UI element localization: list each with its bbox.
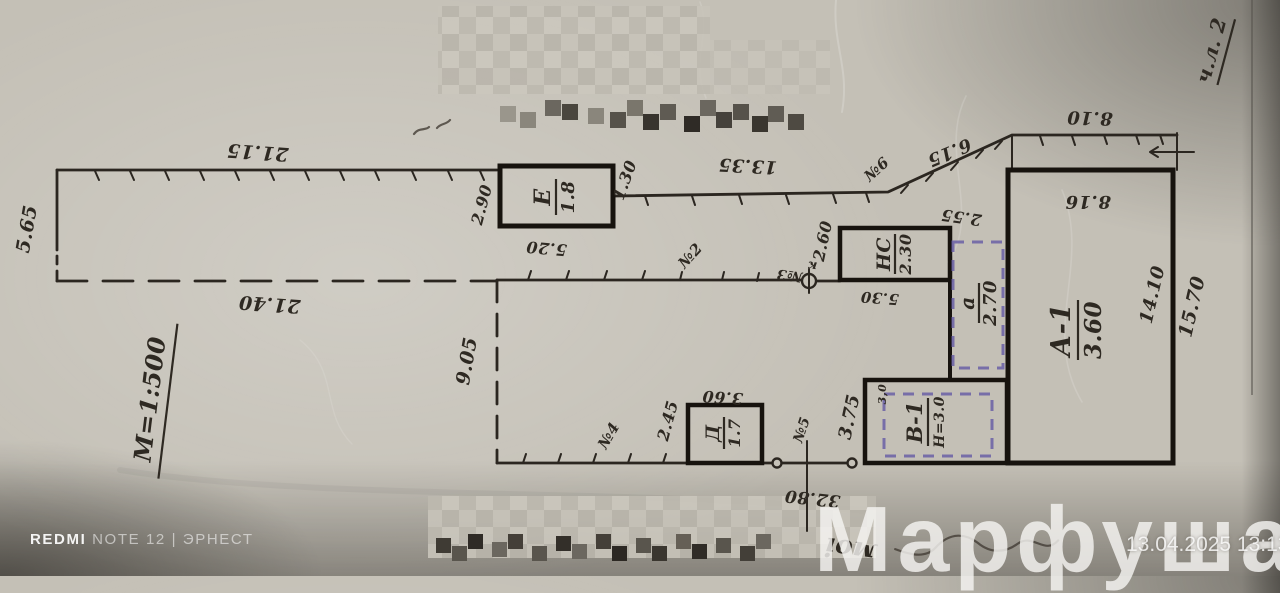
point-n2-label: №2 [674,239,707,272]
annex-a-label: а 2.70 [955,280,1001,327]
sheet-label: ч.л. 2 [1191,15,1231,86]
dim-e-left: 2.90 [467,182,496,227]
svg-text:Е: Е [530,188,556,207]
camera-brand: REDMI [30,531,86,548]
svg-text:М=1:500: М=1:500 [127,335,171,464]
dim-ns-left: 2.60 [809,219,836,264]
dim-strip-bottom: 21.40 [238,291,302,317]
svg-text:НС: НС [873,237,895,272]
dim-strip-top: 21.15 [226,139,290,165]
scale-label: М=1:500 [126,320,178,479]
svg-text:2.70: 2.70 [980,280,1001,327]
camera-model: NOTE 12 | ЭРНЕСТ [92,531,253,548]
dim-right-outer: 15.70 [1174,274,1209,339]
building-a1-label: А-1 3.60 [1046,300,1107,360]
dim-d-left: 2.45 [653,398,682,443]
building-d-label: Д 1.7 [702,417,744,449]
svg-text:1.8: 1.8 [558,181,579,214]
svg-text:2.30: 2.30 [896,234,915,276]
dim-a1-right-inner: 14.10 [1136,264,1170,326]
camera-watermark: REDMI NOTE 12 | ЭРНЕСТ [30,531,254,548]
building-v1-label: В-1 Н=3.0 [902,396,948,449]
dim-a1-top: 8.16 [1065,191,1112,212]
building-ns-label: НС 2.30 [873,234,915,276]
point-n5-marker [773,459,782,468]
right-end-arrow [1150,147,1194,157]
photo-timestamp: 13.04.2025 13:13 [1126,533,1280,557]
svg-text:Н=3.0: Н=3.0 [932,396,948,449]
svg-text:1.7: 1.7 [725,418,744,447]
dim-e-bottom: 5.20 [525,237,567,259]
dim-inner-left: 9.05 [452,335,482,386]
sheet-corner: ч.л. 2 [1191,0,1252,395]
point-n4-label: №4 [593,419,623,453]
dim-ns-bottom: 5.30 [860,288,900,309]
point-n3-label: №3 [775,265,804,285]
dim-v1-left: 3.75 [835,392,865,441]
point-n6-label: №6 [860,153,893,186]
dim-d-top: 3.60 [702,387,744,409]
svg-text:А-1: А-1 [1046,303,1077,358]
dim-mid-top: 13.35 [718,153,778,177]
v1-small-note: 3,0 [876,384,889,405]
dim-strip-left: 5.65 [12,203,42,254]
dim-top-right: 8.10 [1067,106,1115,129]
svg-text:В-1: В-1 [902,401,927,445]
svg-text:Д: Д [702,424,724,443]
building-e-label: Е 1.8 [530,179,579,215]
svg-text:а: а [955,296,979,309]
photographed-site-plan: { "photo": { "camera_brand": "REDMI", "c… [0,0,1280,576]
svg-text:3,0: 3,0 [876,384,889,405]
plot-strip [57,170,497,281]
svg-text:3.60: 3.60 [1080,301,1107,359]
point-marker [848,459,857,468]
point-n5-label: №5 [790,415,814,446]
redaction-mosaic-top [438,6,830,132]
